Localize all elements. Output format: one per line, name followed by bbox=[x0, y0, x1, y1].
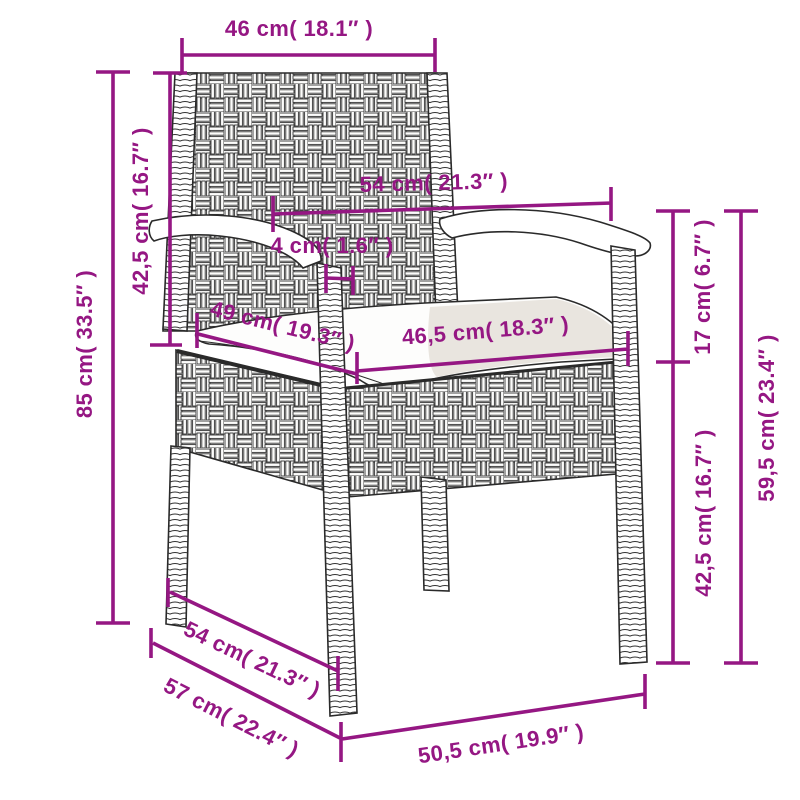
dim-label-total-height: 85 cm( 33.5″ ) bbox=[72, 270, 97, 418]
dim-label-armrest-post-thickness: 4 cm( 1.6″ ) bbox=[271, 233, 394, 258]
chair-dimension-drawing: 46 cm( 18.1″ ) 42,5 cm( 16.7″ ) 85 cm( 3… bbox=[0, 0, 800, 800]
chair-backrest bbox=[163, 73, 457, 331]
dim-label-backrest-height: 42,5 cm( 16.7″ ) bbox=[128, 127, 153, 294]
product-dimension-diagram: 46 cm( 18.1″ ) 42,5 cm( 16.7″ ) 85 cm( 3… bbox=[0, 0, 800, 800]
dim-label-backrest-width: 46 cm( 18.1″ ) bbox=[225, 16, 373, 41]
dim-label-armrest-span: 54 cm( 21.3″ ) bbox=[359, 168, 508, 197]
dim-label-armrest-height: 59,5 cm( 23.4″ ) bbox=[754, 334, 779, 501]
dim-label-armrest-above-seat: 17 cm( 6.7″ ) bbox=[690, 219, 715, 355]
dim-label-seat-to-ground: 42,5 cm( 16.7″ ) bbox=[691, 429, 716, 596]
chair-leg-back-right bbox=[421, 477, 449, 591]
